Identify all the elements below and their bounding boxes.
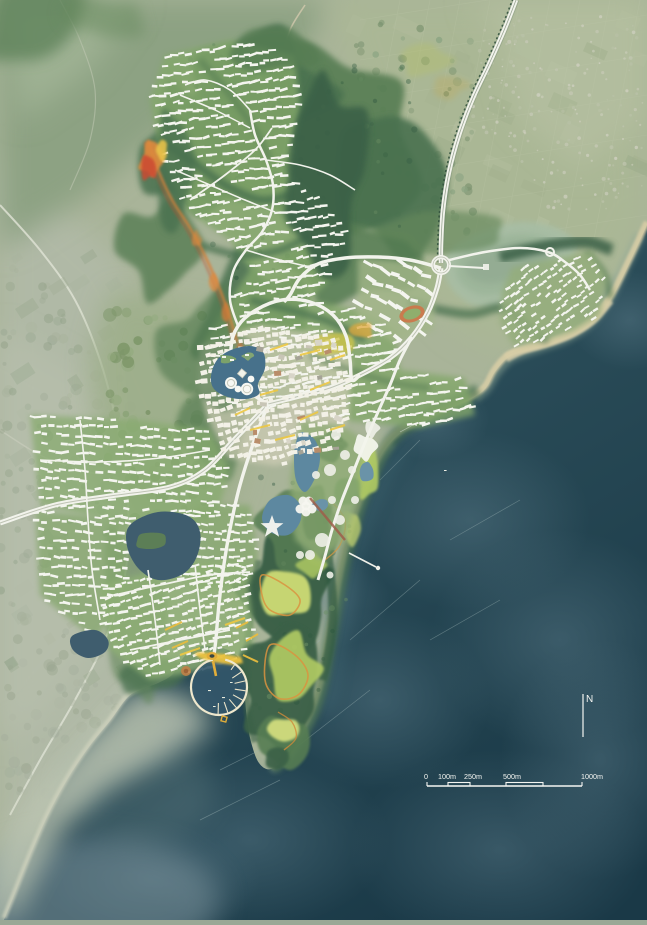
svg-text:250m: 250m bbox=[464, 772, 482, 781]
svg-text:1000m: 1000m bbox=[581, 772, 603, 781]
svg-text:0: 0 bbox=[424, 772, 428, 781]
svg-text:100m: 100m bbox=[438, 772, 456, 781]
svg-text:500m: 500m bbox=[503, 772, 521, 781]
svg-text:N: N bbox=[586, 694, 593, 705]
